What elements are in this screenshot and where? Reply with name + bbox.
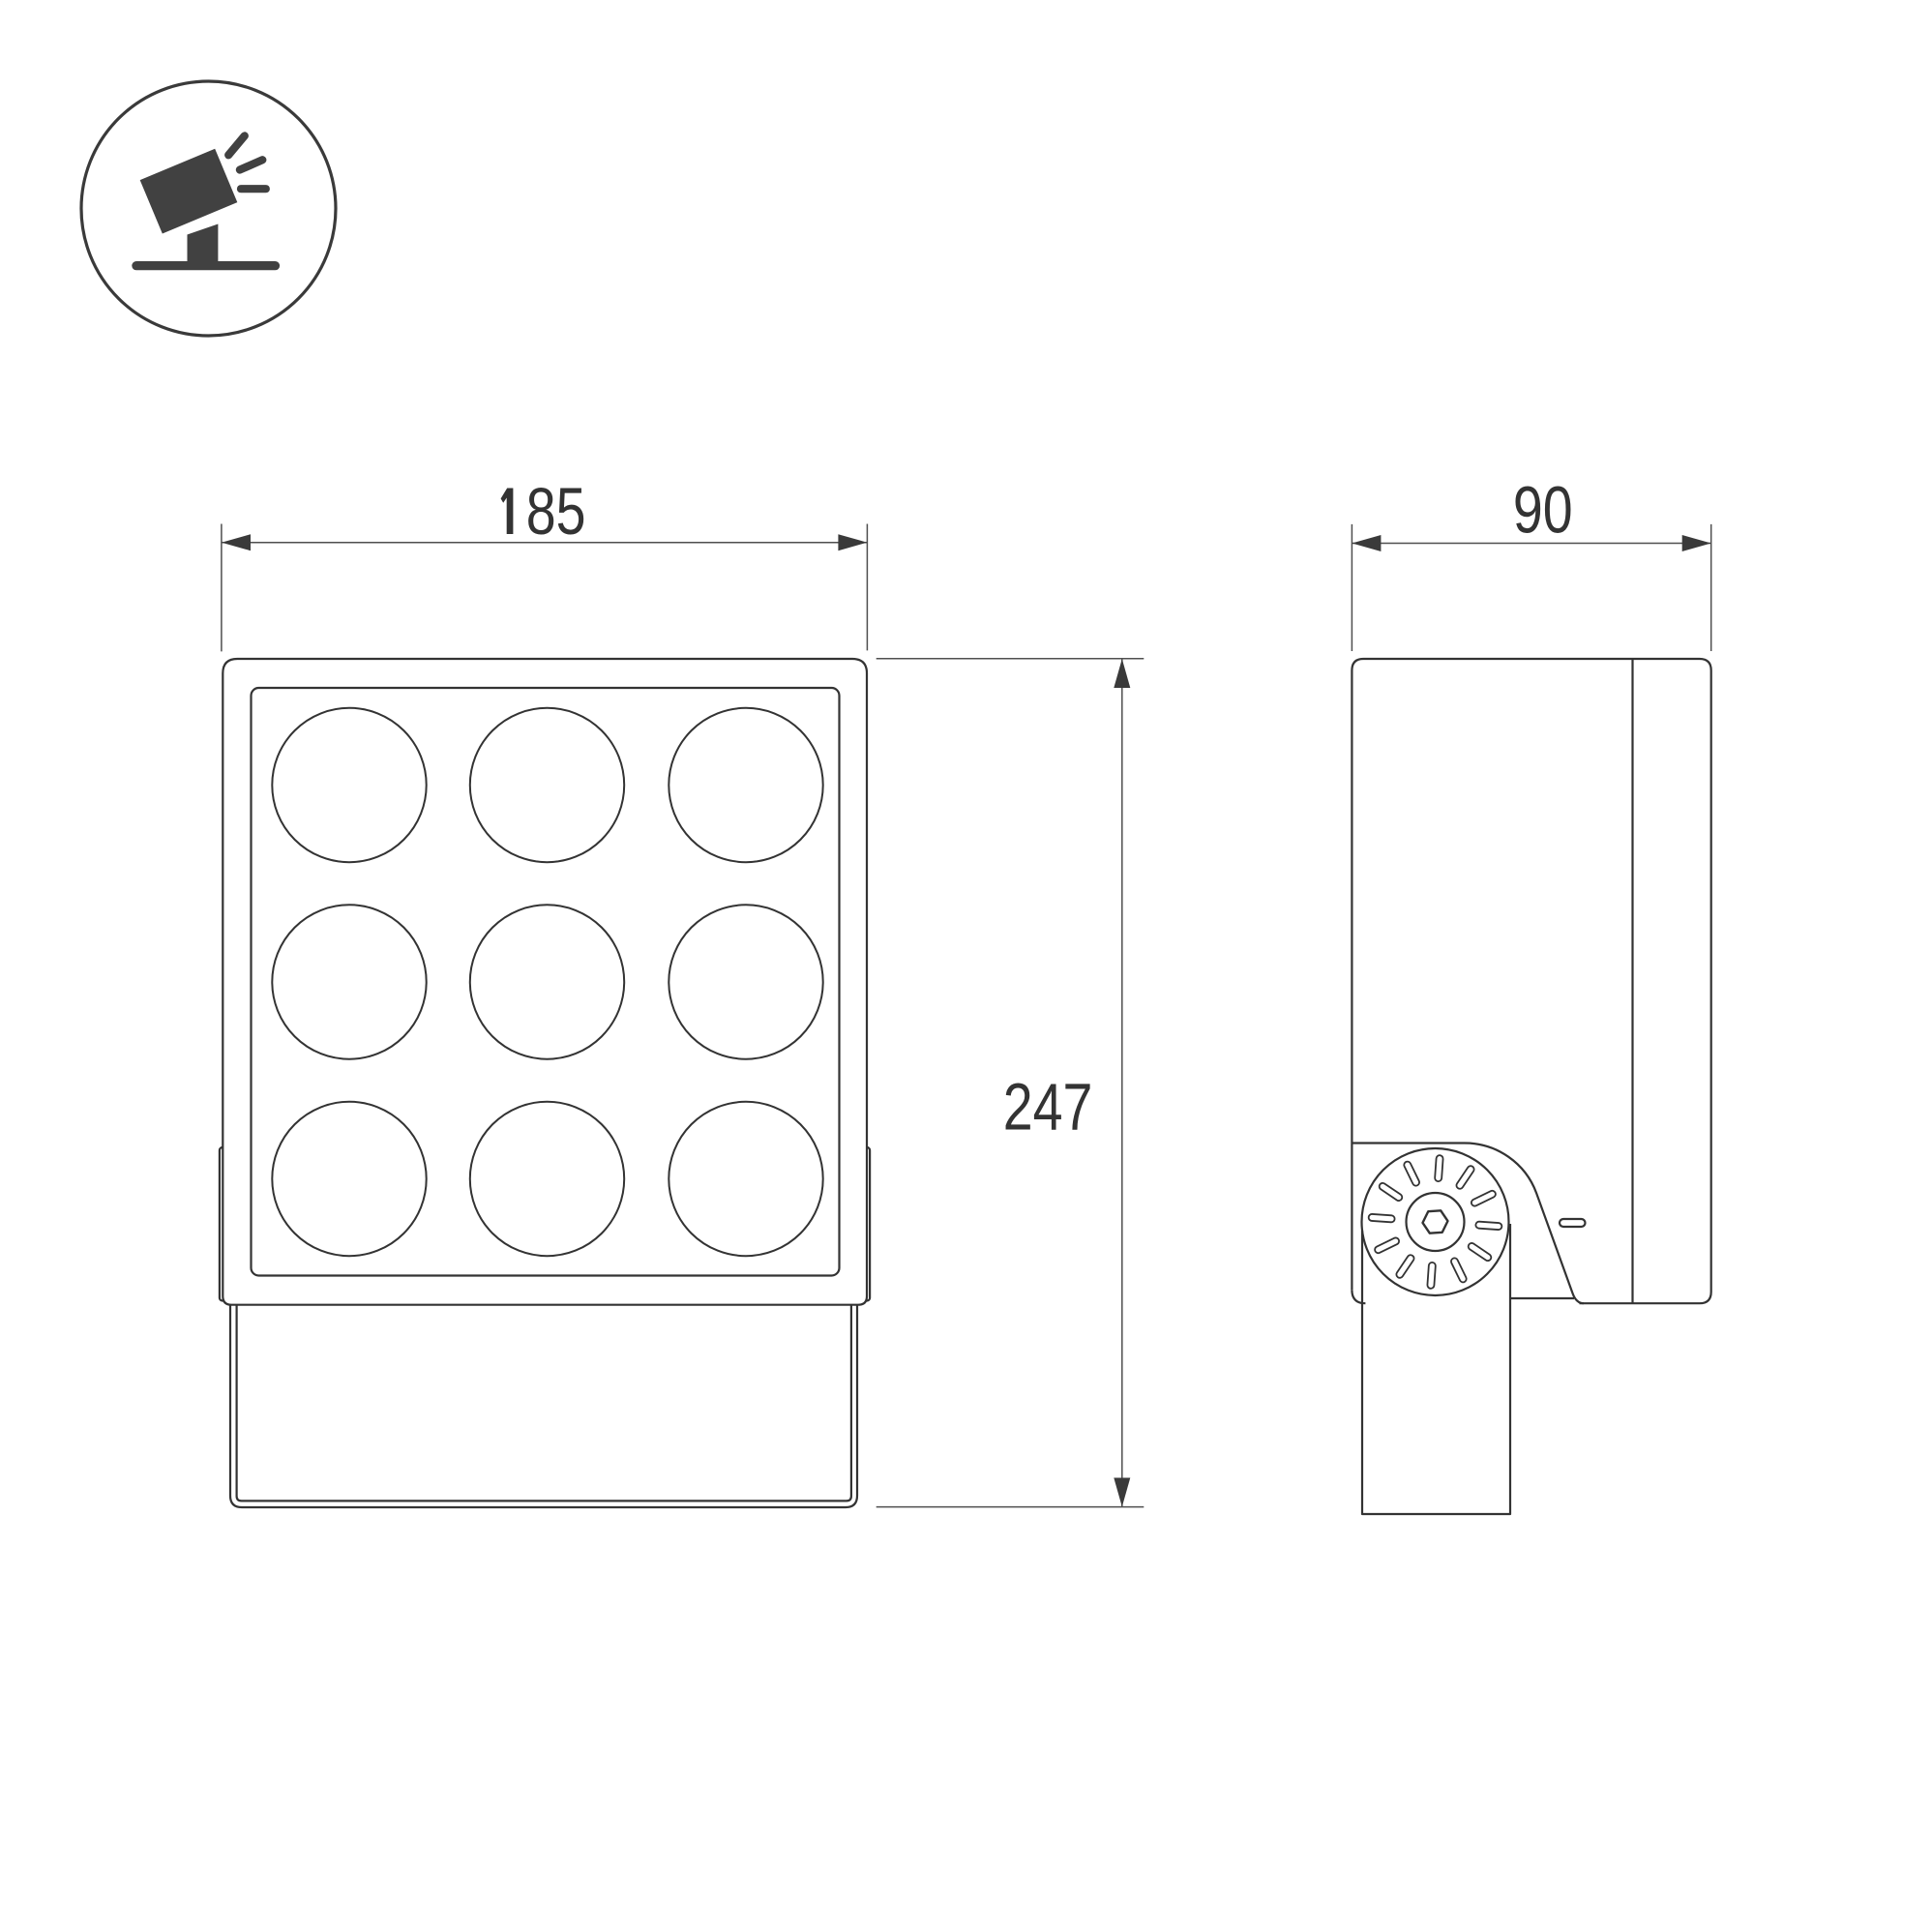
svg-text:247: 247 — [1003, 1070, 1093, 1144]
svg-text:90: 90 — [1513, 473, 1573, 548]
svg-text:85: 85 — [526, 474, 586, 549]
